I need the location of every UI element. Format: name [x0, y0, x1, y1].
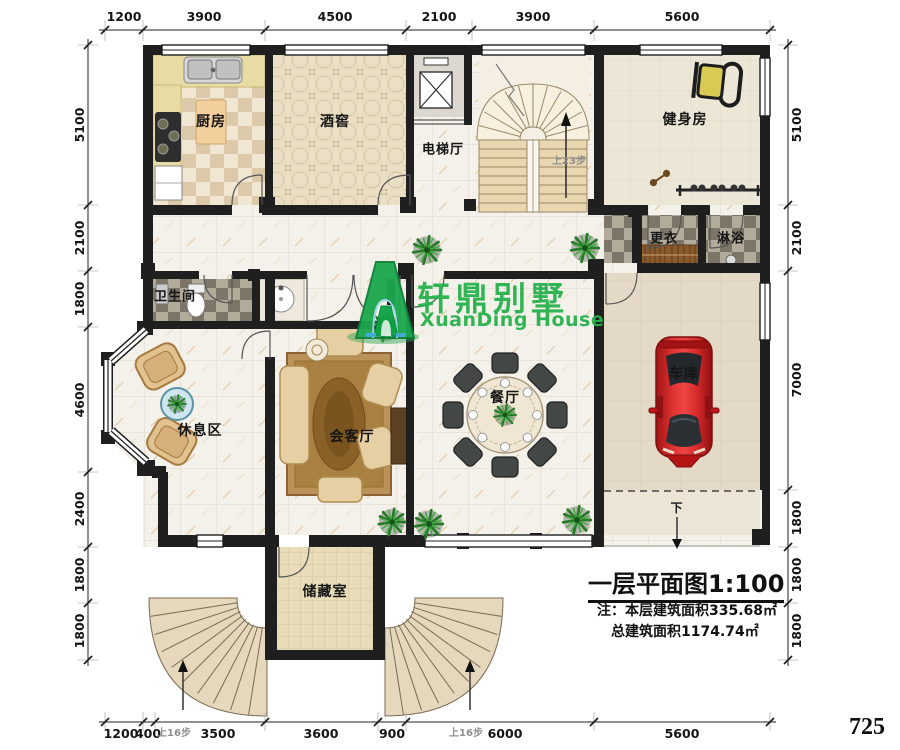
dining-set	[443, 353, 567, 477]
main-staircase	[477, 55, 589, 212]
dim-bottom-5: 900	[379, 728, 405, 741]
room-label-storage: 储藏室	[303, 585, 348, 599]
stairs-up-annotation: 上23步	[552, 157, 586, 167]
room-label-elevator-hall: 电梯厅	[422, 144, 464, 157]
dim-top-4: 2100	[422, 11, 457, 24]
entry-steps-right-annotation: 上16步	[449, 729, 483, 739]
room-label-reception: 会客厅	[330, 430, 375, 444]
elevator	[414, 55, 464, 124]
dim-left-4: 4600	[74, 383, 87, 418]
dim-bottom-4: 3600	[304, 728, 339, 741]
dim-bottom-7: 5600	[665, 728, 700, 741]
dim-bottom-1: 1200	[104, 728, 139, 741]
dim-left-1: 5100	[74, 108, 87, 143]
dim-bottom-6: 6000	[488, 728, 523, 741]
ramp-down-annotation: 下	[670, 502, 683, 514]
dim-right-6: 1800	[791, 614, 804, 649]
dim-right-1: 5100	[791, 108, 804, 143]
dim-right-3: 7000	[791, 363, 804, 398]
room-label-wine-cellar: 酒窖	[320, 115, 350, 129]
room-label-changing-room: 更衣	[650, 233, 678, 246]
area-note-line2: 总建筑面积1174.74㎡	[611, 621, 759, 641]
dim-left-6: 1800	[74, 558, 87, 593]
dim-top-2: 3900	[187, 11, 222, 24]
room-label-kitchen: 厨房	[196, 115, 226, 129]
dim-top-1: 1200	[107, 11, 142, 24]
dim-top-6: 5600	[665, 11, 700, 24]
room-label-shower: 淋浴	[717, 233, 745, 246]
floorplan-drawing	[0, 0, 900, 750]
dim-top-3: 4500	[318, 11, 353, 24]
dim-left-5: 2400	[74, 492, 87, 527]
page-number: 725	[849, 714, 885, 741]
dim-left-3: 1800	[74, 282, 87, 317]
room-label-garage: 车库	[669, 367, 699, 381]
sports-car	[649, 337, 719, 467]
entry-steps-left-annotation: 上16步	[157, 729, 191, 739]
dim-left-7: 1800	[74, 614, 87, 649]
room-label-bathroom: 卫生间	[154, 291, 196, 304]
room-label-gym: 健身房	[663, 113, 708, 127]
plan-title: 一层平面图1:100	[588, 564, 784, 603]
dim-bottom-3: 3500	[201, 728, 236, 741]
dim-left-2: 2100	[74, 221, 87, 256]
dim-right-4: 1800	[791, 501, 804, 536]
floorplan-page: 1200 3900 4500 2100 3900 5600 1200 400 3…	[0, 0, 900, 750]
watermark-brand-en: XuanDing House	[420, 309, 604, 331]
dim-right-2: 2100	[791, 221, 804, 256]
dim-top-5: 3900	[516, 11, 551, 24]
room-label-lounge: 休息区	[178, 424, 223, 438]
room-label-dining: 餐厅	[490, 391, 520, 405]
dim-right-5: 1800	[791, 558, 804, 593]
area-note-line1: 注：本层建筑面积335.68㎡	[597, 600, 777, 620]
